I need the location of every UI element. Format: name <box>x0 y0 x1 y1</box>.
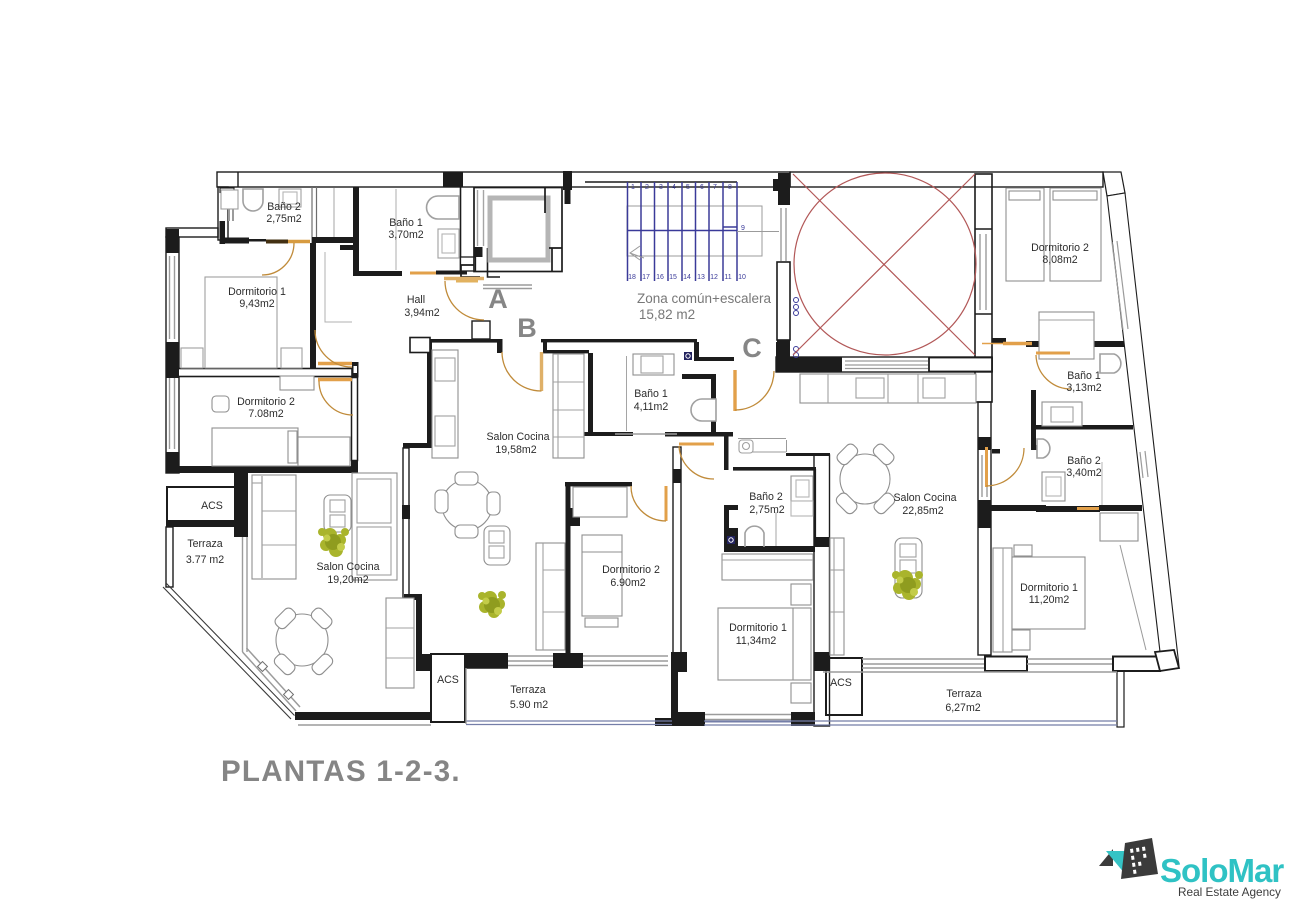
svg-text:Baño 1: Baño 1 <box>1067 370 1101 382</box>
svg-text:Baño 2: Baño 2 <box>749 491 783 503</box>
svg-text:3,94m2: 3,94m2 <box>404 307 439 319</box>
svg-text:Dormitorio 2: Dormitorio 2 <box>602 564 660 576</box>
svg-text:5.90 m2: 5.90 m2 <box>510 699 548 711</box>
svg-text:11,34m2: 11,34m2 <box>736 635 777 647</box>
svg-text:8,08m2: 8,08m2 <box>1042 254 1077 266</box>
svg-text:9: 9 <box>741 225 745 232</box>
svg-text:3,40m2: 3,40m2 <box>1066 467 1101 479</box>
svg-text:Dormitorio 1: Dormitorio 1 <box>1020 582 1078 594</box>
svg-text:Terraza: Terraza <box>510 684 545 696</box>
svg-text:11: 11 <box>724 274 731 281</box>
svg-text:2,75m2: 2,75m2 <box>266 213 301 225</box>
svg-text:Terraza: Terraza <box>946 688 981 700</box>
svg-text:Real Estate Agency: Real Estate Agency <box>1178 885 1281 899</box>
svg-text:6,27m2: 6,27m2 <box>945 702 980 714</box>
svg-text:PLANTAS 1-2-3.: PLANTAS 1-2-3. <box>221 755 461 788</box>
svg-text:10: 10 <box>738 274 746 281</box>
svg-text:17: 17 <box>642 274 650 281</box>
svg-text:15,82 m2: 15,82 m2 <box>639 307 695 322</box>
svg-text:19,58m2: 19,58m2 <box>495 444 536 456</box>
svg-text:13: 13 <box>697 274 705 281</box>
svg-text:Baño 2: Baño 2 <box>1067 455 1101 467</box>
svg-text:ACS: ACS <box>437 674 459 686</box>
svg-text:Salon Cocina: Salon Cocina <box>486 431 549 443</box>
svg-text:5: 5 <box>686 184 690 191</box>
svg-text:6.90m2: 6.90m2 <box>610 577 645 589</box>
svg-text:14: 14 <box>683 274 691 281</box>
svg-text:Baño 1: Baño 1 <box>389 217 423 229</box>
svg-text:7: 7 <box>713 184 717 191</box>
svg-text:15: 15 <box>669 274 677 281</box>
svg-text:ACS: ACS <box>830 677 852 689</box>
svg-text:11,20m2: 11,20m2 <box>1029 594 1070 606</box>
svg-text:B: B <box>517 313 537 343</box>
svg-text:8: 8 <box>728 184 732 191</box>
svg-text:4: 4 <box>672 184 676 191</box>
svg-text:Dormitorio 2: Dormitorio 2 <box>237 396 295 408</box>
svg-text:4,11m2: 4,11m2 <box>634 401 669 413</box>
svg-text:Dormitorio 1: Dormitorio 1 <box>729 622 787 634</box>
svg-text:Hall: Hall <box>407 294 425 306</box>
svg-text:18: 18 <box>628 274 636 281</box>
svg-text:A: A <box>488 284 508 314</box>
svg-text:2: 2 <box>645 184 649 191</box>
svg-text:1: 1 <box>631 184 635 191</box>
svg-text:Salon Cocina: Salon Cocina <box>316 561 379 573</box>
svg-text:7.08m2: 7.08m2 <box>248 408 283 420</box>
svg-text:3: 3 <box>659 184 663 191</box>
svg-text:12: 12 <box>710 274 718 281</box>
svg-text:6: 6 <box>700 184 704 191</box>
svg-text:22,85m2: 22,85m2 <box>902 505 943 517</box>
svg-text:16: 16 <box>656 274 664 281</box>
svg-text:19,20m2: 19,20m2 <box>327 574 368 586</box>
svg-text:3,70m2: 3,70m2 <box>388 229 423 241</box>
svg-text:Dormitorio 2: Dormitorio 2 <box>1031 242 1089 254</box>
svg-text:C: C <box>742 333 762 363</box>
svg-text:3,13m2: 3,13m2 <box>1066 382 1101 394</box>
svg-text:Baño 1: Baño 1 <box>634 388 668 400</box>
svg-text:Baño 2: Baño 2 <box>267 201 301 213</box>
svg-text:SoloMar: SoloMar <box>1160 852 1284 889</box>
svg-text:Terraza: Terraza <box>187 538 222 550</box>
svg-text:2,75m2: 2,75m2 <box>749 504 784 516</box>
svg-text:9,43m2: 9,43m2 <box>239 298 274 310</box>
svg-text:3.77 m2: 3.77 m2 <box>186 554 224 566</box>
svg-text:Dormitorio 1: Dormitorio 1 <box>228 286 286 298</box>
svg-text:ACS: ACS <box>201 500 223 512</box>
svg-text:Zona común+escalera: Zona común+escalera <box>637 291 771 306</box>
svg-text:Salon Cocina: Salon Cocina <box>893 492 956 504</box>
